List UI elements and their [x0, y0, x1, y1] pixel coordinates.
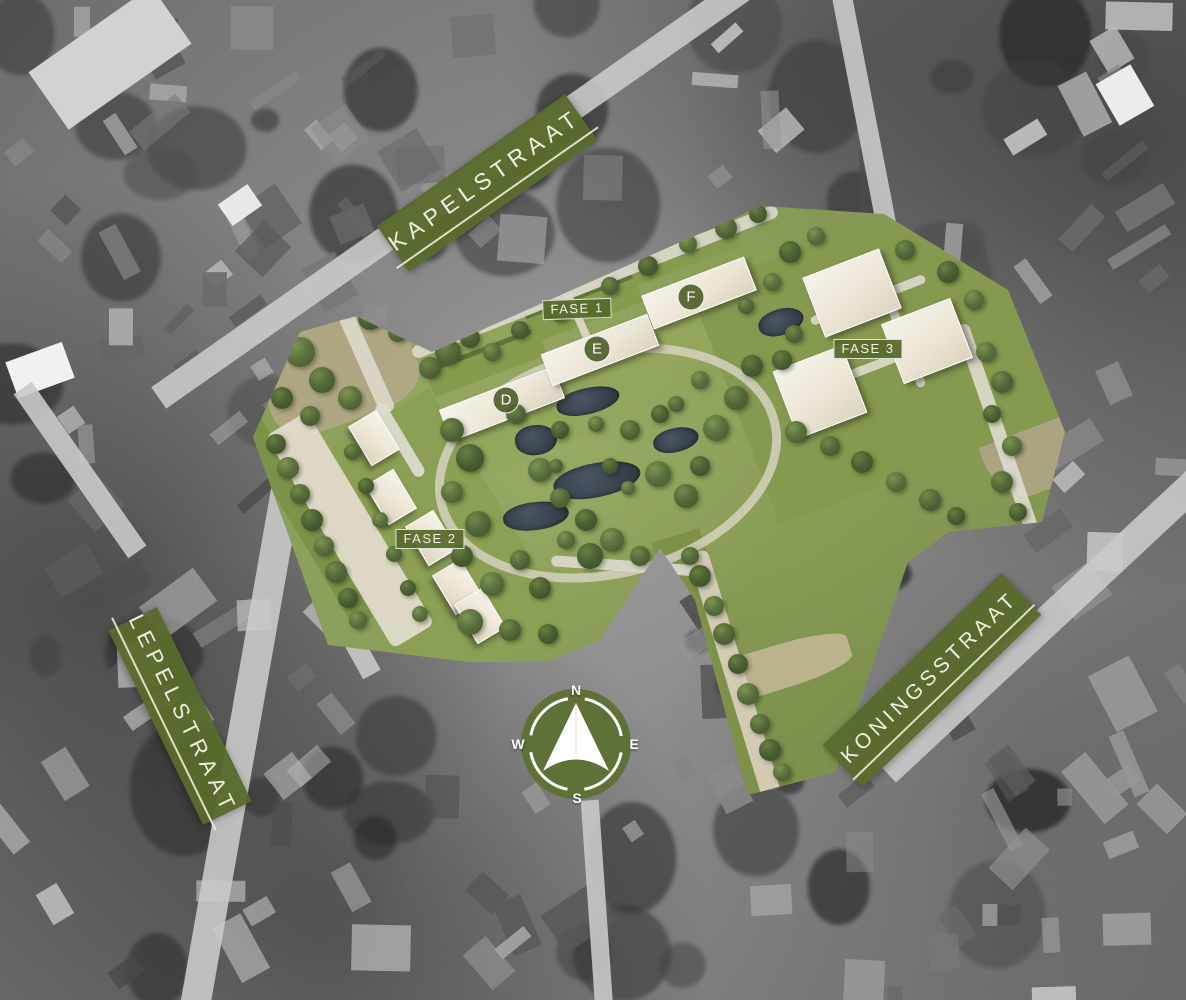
tree: [620, 420, 640, 440]
vegetation-texture: [123, 147, 198, 200]
photo-building-texture: [583, 155, 623, 201]
tree: [991, 371, 1013, 393]
tree: [412, 606, 428, 622]
compass-north-label: N: [571, 682, 581, 698]
photo-building-texture: [450, 13, 496, 58]
tree: [602, 458, 618, 474]
photo-building-texture: [51, 194, 83, 226]
tree: [690, 456, 710, 476]
tree: [983, 405, 1001, 423]
photo-building-texture: [1088, 655, 1158, 732]
tree: [325, 561, 347, 583]
tree: [271, 387, 293, 409]
photo-building-texture: [44, 543, 104, 598]
photo-building-texture: [164, 303, 195, 335]
photo-building-texture: [0, 804, 29, 854]
tree: [1009, 503, 1027, 521]
photo-building-texture: [886, 986, 902, 1000]
tree: [338, 588, 358, 608]
building-marker-e: E: [584, 336, 611, 363]
tree: [456, 444, 484, 472]
tree: [689, 565, 711, 587]
vegetation-texture: [354, 817, 396, 860]
tree: [538, 624, 558, 644]
photo-building-texture: [331, 863, 372, 913]
tree: [575, 509, 597, 531]
photo-building-texture: [4, 138, 34, 167]
compass-east-label: E: [629, 736, 638, 752]
tree: [674, 484, 698, 508]
photo-building-texture: [671, 755, 698, 784]
photo-building-texture: [36, 883, 74, 925]
phase-label-fase-3: FASE 3: [833, 339, 902, 359]
photo-building-texture: [203, 272, 227, 306]
tree: [645, 461, 671, 487]
photo-building-texture: [996, 905, 1022, 926]
photo-building-texture: [1014, 258, 1053, 304]
tree: [314, 536, 334, 556]
tree: [349, 611, 367, 629]
compass-rose-icon: [520, 688, 632, 800]
tree: [601, 277, 619, 295]
tree: [465, 511, 491, 537]
tree: [440, 418, 464, 442]
tree: [550, 488, 570, 508]
tree: [277, 457, 299, 479]
photo-building-texture: [760, 90, 781, 149]
vegetation-texture: [1082, 130, 1149, 185]
photo-building-texture: [352, 924, 412, 971]
tree: [338, 386, 362, 410]
tree: [773, 763, 791, 781]
photo-building-texture: [243, 896, 277, 926]
photo-building-texture: [1155, 458, 1186, 476]
tree: [886, 472, 906, 492]
photo-building-texture: [707, 165, 732, 189]
building-marker-f: F: [678, 284, 705, 311]
photo-building-texture: [41, 747, 90, 801]
tree: [358, 478, 374, 494]
vegetation-texture: [931, 59, 974, 94]
phase-label-fase-1: FASE 1: [542, 298, 612, 320]
tree: [529, 577, 551, 599]
photo-building-texture: [249, 71, 301, 111]
photo-building-texture: [1139, 264, 1170, 293]
compass-south-label: S: [572, 790, 581, 806]
vegetation-texture: [251, 108, 279, 132]
tree: [441, 481, 463, 503]
tree: [976, 342, 996, 362]
tree: [290, 484, 310, 504]
tree: [964, 290, 984, 310]
tree: [651, 405, 669, 423]
building-marker-d: D: [493, 387, 520, 414]
vegetation-texture: [30, 636, 61, 676]
tree: [779, 241, 801, 263]
tree: [344, 444, 360, 460]
photo-building-texture: [1103, 913, 1152, 946]
tree: [759, 739, 781, 761]
tree: [704, 596, 724, 616]
compass-west-label: W: [511, 736, 524, 752]
photo-building-texture: [316, 693, 355, 735]
tree: [763, 273, 781, 291]
photo-building-texture: [1057, 788, 1073, 805]
photo-building-texture: [109, 308, 133, 345]
tree: [713, 623, 735, 645]
tree: [510, 550, 530, 570]
tree: [668, 396, 684, 412]
phase-label-fase-2: FASE 2: [395, 529, 464, 549]
tree: [588, 416, 604, 432]
tree: [691, 371, 709, 389]
tree: [807, 227, 825, 245]
photo-building-texture: [1107, 224, 1171, 270]
tree: [1002, 436, 1022, 456]
tree: [528, 458, 552, 482]
photo-building-texture: [1059, 204, 1106, 253]
vegetation-texture: [659, 942, 705, 987]
photo-building-texture: [1103, 831, 1139, 860]
tree: [549, 459, 563, 473]
photo-building-texture: [425, 775, 460, 819]
tree: [419, 357, 441, 379]
tree: [551, 421, 569, 439]
photo-building-texture: [496, 213, 547, 264]
photo-building-texture: [750, 884, 793, 916]
photo-building-texture: [927, 934, 960, 971]
tree: [785, 421, 807, 443]
tree: [750, 714, 770, 734]
photo-building-texture: [1106, 2, 1174, 31]
tree: [621, 481, 635, 495]
photo-building-texture: [103, 558, 153, 604]
tree: [937, 261, 959, 283]
tree: [785, 325, 803, 343]
compass-rose: [520, 688, 632, 800]
photo-building-texture: [982, 904, 997, 926]
masterplan-aerial-map: KAPELSTRAAT LEPELSTRAAT KONINGSSTRAAT FA…: [0, 0, 1186, 1000]
tree: [577, 543, 603, 569]
tree: [400, 580, 416, 596]
photo-building-texture: [1032, 986, 1076, 1000]
tree: [300, 406, 320, 426]
tree: [991, 471, 1013, 493]
tree: [600, 528, 624, 552]
tree: [483, 343, 501, 361]
tree: [372, 512, 388, 528]
tree: [737, 683, 759, 705]
tree: [480, 572, 504, 596]
tree: [919, 489, 941, 511]
photo-building-texture: [231, 6, 274, 50]
tree: [309, 367, 335, 393]
vegetation-texture: [534, 0, 600, 37]
vegetation-texture: [356, 696, 437, 776]
photo-building-texture: [692, 72, 739, 88]
photo-building-texture: [1042, 917, 1061, 953]
photo-building-texture: [37, 228, 72, 263]
tree: [499, 619, 521, 641]
photo-building-texture: [287, 662, 317, 691]
tree: [630, 546, 650, 566]
tree: [738, 298, 754, 314]
tree: [895, 240, 915, 260]
tree: [851, 451, 873, 473]
photo-building-texture: [1164, 663, 1186, 704]
tree: [557, 531, 575, 549]
tree: [681, 547, 699, 565]
photo-building-texture: [843, 959, 886, 1000]
photo-building-texture: [271, 802, 293, 847]
tree: [772, 350, 792, 370]
tree: [511, 321, 529, 339]
tree: [947, 507, 965, 525]
tree: [741, 355, 763, 377]
tree: [703, 415, 729, 441]
tree: [266, 434, 286, 454]
photo-building-texture: [847, 832, 874, 872]
photo-building-texture: [1096, 361, 1134, 404]
tree: [457, 609, 483, 635]
tree: [301, 509, 323, 531]
tree: [728, 654, 748, 674]
tree: [820, 436, 840, 456]
tree: [724, 386, 748, 410]
